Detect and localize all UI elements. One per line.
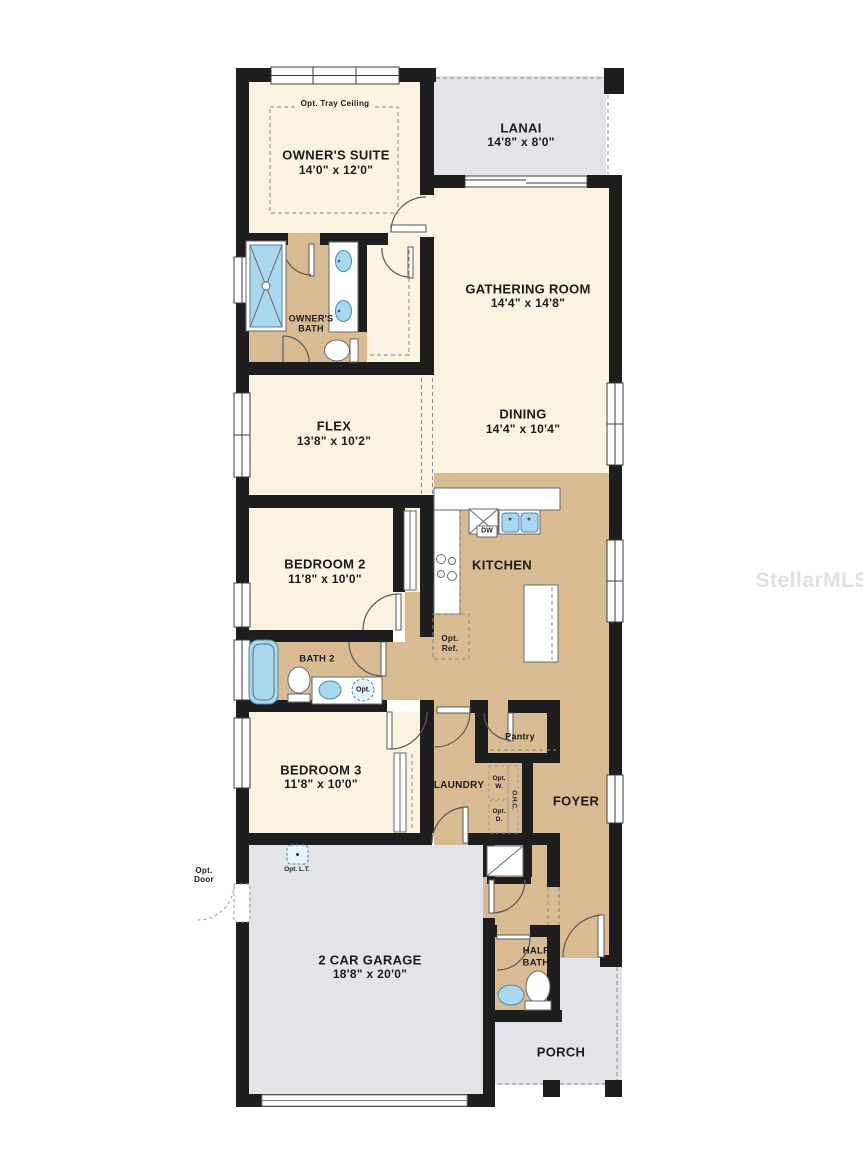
watermark: StellarMLS xyxy=(755,569,863,593)
room-label-owners-suite: OWNER'S SUITE xyxy=(282,149,389,162)
opt-door-label-2: Door xyxy=(194,876,214,884)
room-label-laundry: LAUNDRY xyxy=(434,781,485,791)
room-label-pantry: Pantry xyxy=(505,733,535,742)
opt-dryer-label-1: Opt. xyxy=(493,809,506,816)
opt-dryer-label-2: D. xyxy=(496,817,503,824)
room-dims-flex: 13'8" x 10'2" xyxy=(297,435,371,447)
room-dims-bedroom2: 11'8" x 10'0" xyxy=(288,573,362,585)
room-label-garage: 2 CAR GARAGE xyxy=(318,954,421,967)
room-label-kitchen: KITCHEN xyxy=(472,559,532,572)
room-label-half-bath-2: BATH xyxy=(523,958,550,968)
room-label-porch: PORCH xyxy=(537,1046,585,1059)
room-label-flex: FLEX xyxy=(317,420,351,433)
room-dims-dining: 14'4" x 10'4" xyxy=(486,423,560,435)
room-label-owners-bath-1: OWNER'S xyxy=(289,315,334,324)
opt-ref-label-2: Ref. xyxy=(442,645,458,653)
room-label-dining: DINING xyxy=(499,408,546,421)
opt-ref-label-1: Opt. xyxy=(441,635,458,643)
room-label-bedroom3: BEDROOM 3 xyxy=(280,764,361,777)
opt-door-label-1: Opt. xyxy=(195,867,212,875)
labels: Opt. Tray Ceiling OWNER'S SUITE 14'0" x … xyxy=(0,0,863,1166)
floor-plan: Opt. Tray Ceiling OWNER'S SUITE 14'0" x … xyxy=(0,0,863,1166)
opt-lt-label: Opt. L.T. xyxy=(284,867,310,874)
room-dims-owners-suite: 14'0" x 12'0" xyxy=(299,164,373,176)
ohc-label: O.H.C. xyxy=(510,790,517,810)
opt-washer-label-2: W. xyxy=(495,784,503,791)
room-label-gathering: GATHERING ROOM xyxy=(465,283,590,296)
room-label-half-bath-1: HALF xyxy=(523,946,550,956)
room-dims-bedroom3: 11'8" x 10'0" xyxy=(284,778,358,790)
room-dims-garage: 18'8" x 20'0" xyxy=(333,968,407,980)
opt-sink-label: Opt. xyxy=(356,687,370,694)
room-dims-gathering: 14'4" x 14'8" xyxy=(491,297,565,309)
room-dims-lanai: 14'8" x 8'0" xyxy=(487,136,554,148)
opt-washer-label-1: Opt. xyxy=(493,776,506,783)
room-label-bedroom2: BEDROOM 2 xyxy=(284,558,365,571)
dishwasher-label: DW xyxy=(481,528,493,535)
room-label-bath2: BATH 2 xyxy=(299,654,334,664)
room-label-foyer: FOYER xyxy=(553,795,599,808)
room-label-owners-bath-2: BATH xyxy=(298,325,324,334)
room-label-lanai: LANAI xyxy=(500,122,541,135)
tray-ceiling-label: Opt. Tray Ceiling xyxy=(298,100,373,108)
